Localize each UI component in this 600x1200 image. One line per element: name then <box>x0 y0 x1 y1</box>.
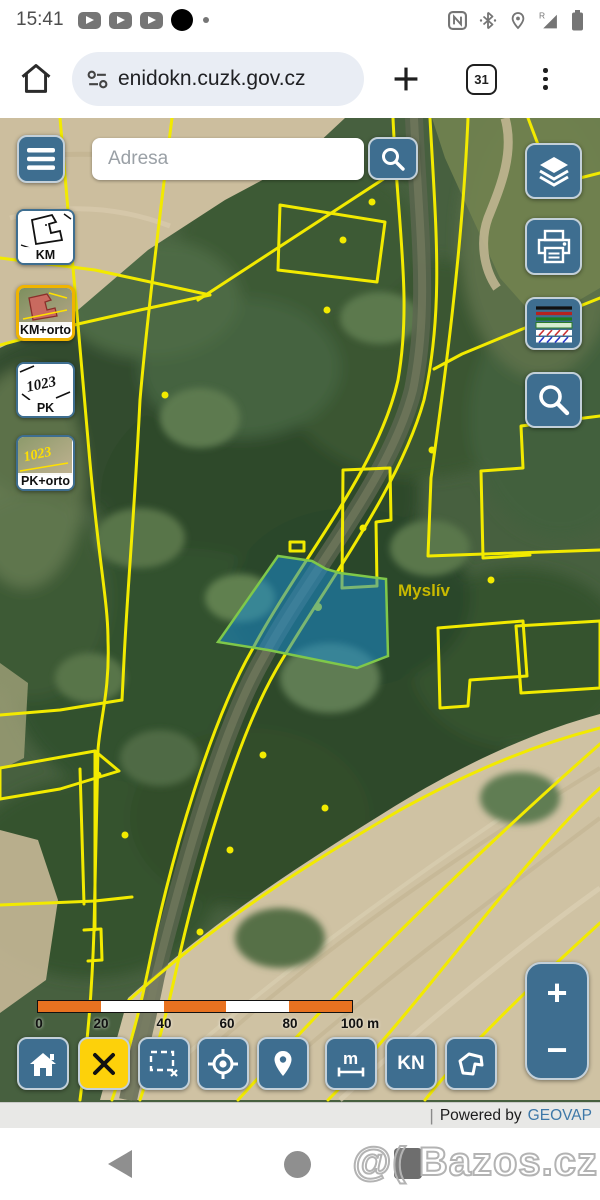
zoom-control: + − <box>525 962 589 1080</box>
zoom-in-button[interactable]: + <box>527 964 587 1021</box>
pk-thumbnail: 1023 <box>18 364 72 402</box>
locate-me-button[interactable] <box>197 1037 249 1090</box>
place-label: Myslív <box>398 581 451 600</box>
signal-roaming-icon: R <box>539 11 559 30</box>
android-nav-bar: @( Bazos.cz <box>0 1128 600 1200</box>
url-text[interactable]: enidokn.cuzk.gov.cz <box>118 67 306 91</box>
map-pin-icon <box>270 1049 296 1079</box>
menu-button[interactable] <box>17 135 65 183</box>
address-search-input[interactable] <box>92 138 364 180</box>
browser-toolbar: enidokn.cuzk.gov.cz 31 <box>0 40 600 118</box>
status-bar: 15:41 R <box>0 0 600 40</box>
layer-button-label: PK <box>18 400 73 416</box>
watermark: @( Bazos.cz <box>352 1140 598 1185</box>
draw-polygon-button[interactable] <box>445 1037 497 1090</box>
map-search-button[interactable] <box>525 372 582 428</box>
hamburger-icon <box>27 148 55 170</box>
back-button[interactable] <box>108 1150 132 1178</box>
polygon-icon <box>456 1050 486 1078</box>
close-icon <box>92 1052 116 1076</box>
layer-button-km[interactable]: KM <box>16 209 75 265</box>
home-extent-button[interactable] <box>17 1037 69 1090</box>
nfc-icon <box>448 11 467 30</box>
tab-count: 31 <box>474 72 488 87</box>
place-marker-button[interactable] <box>257 1037 309 1090</box>
km-thumbnail <box>18 211 72 249</box>
select-area-button[interactable] <box>138 1037 190 1090</box>
location-icon <box>509 11 527 30</box>
attribution-separator: | <box>429 1106 433 1126</box>
attribution-text: Powered by <box>440 1107 522 1125</box>
address-search-button[interactable] <box>368 137 418 180</box>
youtube-notification-icon <box>78 12 101 29</box>
battery-icon <box>571 10 584 31</box>
scale-tick: 40 <box>156 1016 171 1031</box>
clock: 15:41 <box>16 9 64 31</box>
layer-button-label: PK+orto <box>18 473 73 489</box>
layer-button-label: KM <box>18 247 73 263</box>
layers-icon <box>537 155 571 187</box>
layer-button-km-orto[interactable]: KM+orto <box>16 285 75 341</box>
kn-label: KN <box>397 1053 424 1075</box>
youtube-notification-icon <box>140 12 163 29</box>
layer-button-pk-orto[interactable]: 1023 PK+orto <box>16 435 75 491</box>
phone-screen: 15:41 R <box>0 0 600 1200</box>
youtube-notification-icon <box>109 12 132 29</box>
scale-tick: 80 <box>282 1016 297 1031</box>
scale-tick: 0 <box>35 1016 43 1031</box>
crosshair-icon <box>207 1048 239 1080</box>
home-button[interactable] <box>284 1151 311 1178</box>
legend-icon <box>534 305 574 343</box>
scale-tick: 20 <box>93 1016 108 1031</box>
home-icon <box>28 1050 58 1078</box>
scale-bar: 0 20 40 60 80 100 m <box>37 1000 353 1034</box>
search-icon <box>380 146 406 172</box>
scale-tick: 100 m <box>341 1016 379 1031</box>
layer-button-pk[interactable]: 1023 PK <box>16 362 75 418</box>
kn-info-button[interactable]: KN <box>385 1037 437 1090</box>
browser-home-button[interactable] <box>18 61 54 97</box>
svg-text:m: m <box>343 1049 358 1068</box>
site-settings-icon[interactable] <box>86 68 109 91</box>
tab-switcher-button[interactable]: 31 <box>466 64 497 95</box>
bluetooth-icon <box>479 11 497 30</box>
scale-tick: 60 <box>219 1016 234 1031</box>
selection-rectangle-icon <box>149 1050 179 1078</box>
search-icon <box>537 383 571 417</box>
layer-button-label: KM+orto <box>19 322 72 338</box>
map-canvas[interactable]: Myslív <box>0 118 600 1102</box>
km-orto-thumbnail <box>19 288 73 326</box>
pk-orto-thumbnail: 1023 <box>18 437 72 475</box>
notification-dot-icon <box>171 9 193 31</box>
layers-button[interactable] <box>525 143 582 199</box>
url-bar[interactable]: enidokn.cuzk.gov.cz <box>72 52 364 106</box>
close-tool-button[interactable] <box>78 1037 130 1090</box>
svg-text:R: R <box>539 11 545 20</box>
map-container: Myslív <box>0 118 600 1128</box>
zoom-out-button[interactable]: − <box>527 1021 587 1078</box>
measure-button[interactable]: m <box>325 1037 377 1090</box>
map-attribution: | Powered by GEOVAP <box>0 1102 600 1128</box>
notification-icons <box>78 9 209 31</box>
attribution-vendor-link[interactable]: GEOVAP <box>528 1107 592 1125</box>
print-button[interactable] <box>525 218 582 275</box>
system-icons: R <box>448 10 584 31</box>
more-notifications-icon <box>203 17 209 23</box>
new-tab-button[interactable] <box>390 63 422 95</box>
measure-icon: m <box>335 1048 367 1080</box>
browser-menu-button[interactable] <box>543 68 548 90</box>
printer-icon <box>535 229 573 265</box>
legend-button[interactable] <box>525 297 582 350</box>
